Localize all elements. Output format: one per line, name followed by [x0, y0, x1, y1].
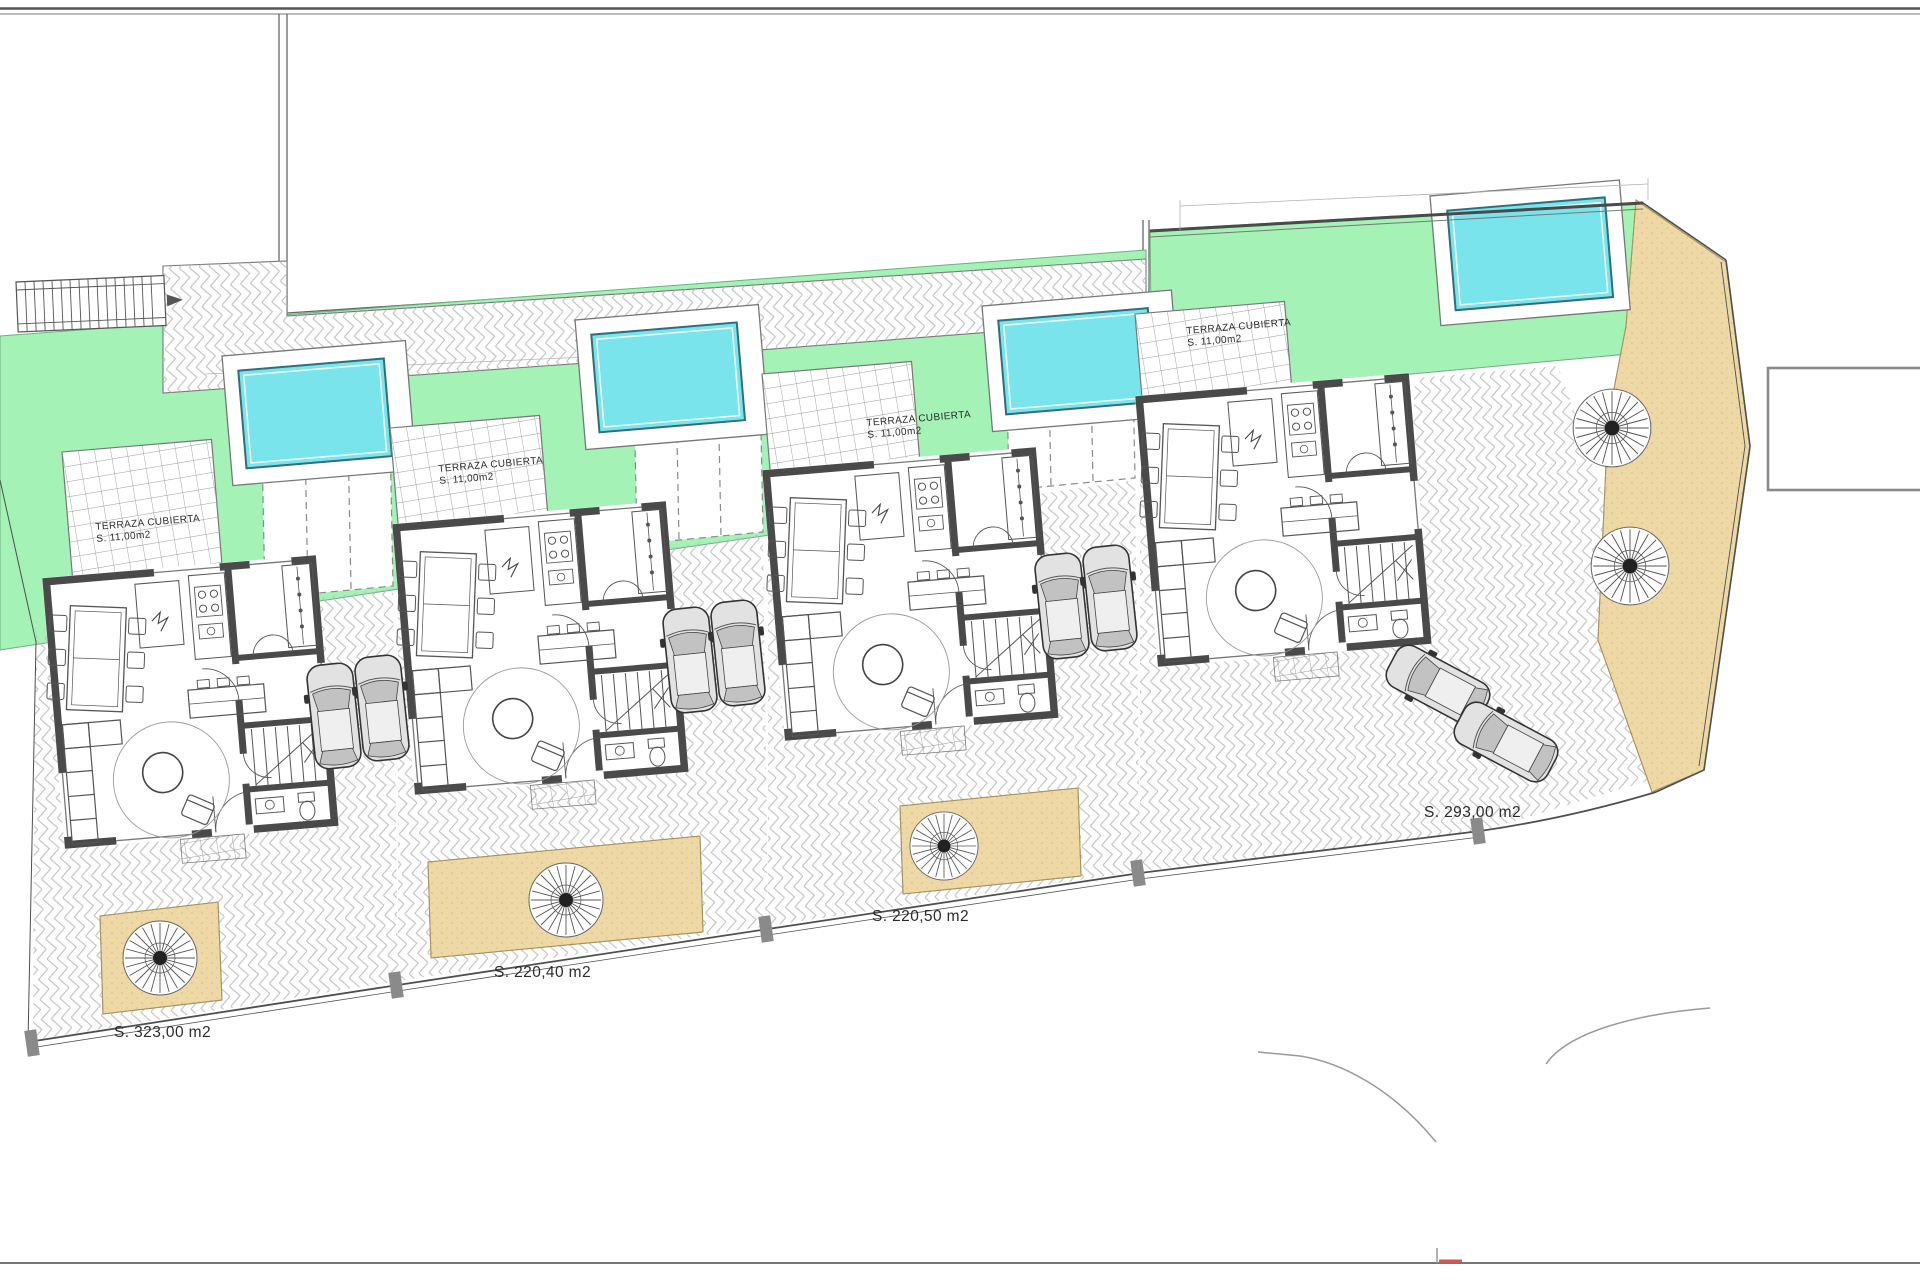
pool-villa-4	[1430, 180, 1630, 325]
villa-3-house	[755, 447, 1060, 766]
site-plan-drawing	[0, 0, 1920, 1280]
plot-area-label-villa-2: S. 220,40 m2	[494, 964, 591, 982]
site-plan-page: TERRAZA CUBIERTA S. 11,00m2 TERRAZA CUBI…	[0, 0, 1920, 1280]
page-frame	[0, 9, 1920, 15]
plot-area-label-villa-4: S. 293,00 m2	[1424, 804, 1521, 822]
neighbor-parcel	[1768, 368, 1920, 490]
plot-area-label-villa-1: S. 323,00 m2	[114, 1024, 211, 1042]
plot-area-label-villa-3: S. 220,50 m2	[872, 908, 969, 926]
stairs-strip	[16, 275, 184, 332]
road-lines	[0, 1008, 1920, 1263]
pool-villa-1	[222, 341, 416, 486]
villa-1-house	[35, 555, 340, 874]
villa-4-house	[1128, 373, 1433, 692]
pool-villa-2	[575, 305, 769, 450]
villa-2-house	[385, 501, 690, 820]
